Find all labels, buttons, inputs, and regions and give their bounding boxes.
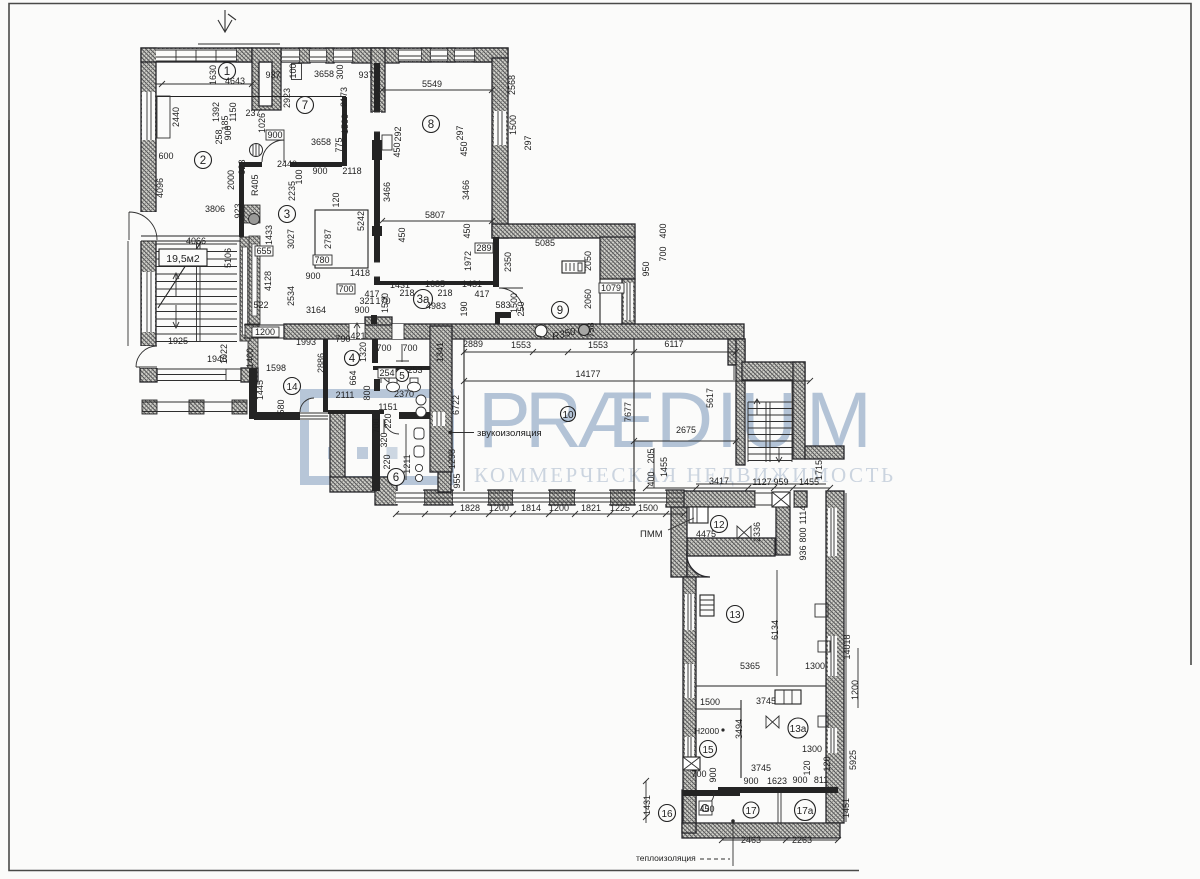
svg-text:теплоизоляция: теплоизоляция (636, 853, 696, 863)
svg-text:1972: 1972 (463, 251, 473, 271)
svg-text:1993: 1993 (296, 337, 316, 347)
svg-text:664: 664 (348, 370, 358, 385)
svg-text:900: 900 (792, 775, 807, 785)
svg-text:Н2000: Н2000 (694, 726, 719, 736)
svg-text:790: 790 (335, 334, 350, 344)
svg-text:9: 9 (557, 305, 563, 317)
svg-text:8: 8 (428, 119, 434, 131)
svg-text:17а: 17а (797, 806, 814, 817)
svg-text:1320: 1320 (358, 342, 368, 362)
svg-text:2000: 2000 (226, 170, 236, 190)
svg-text:3658: 3658 (311, 137, 331, 147)
svg-text:955: 955 (452, 473, 462, 488)
svg-text:100: 100 (288, 63, 298, 78)
svg-text:14177: 14177 (575, 369, 600, 379)
svg-text:Æ: Æ (577, 375, 656, 464)
svg-text:3417: 3417 (709, 476, 729, 486)
svg-text:120: 120 (822, 756, 832, 771)
svg-text:1150: 1150 (228, 102, 238, 121)
svg-text:1200: 1200 (489, 503, 509, 513)
svg-text:1433: 1433 (264, 225, 274, 245)
svg-text:P: P (478, 375, 531, 464)
svg-text:3806: 3806 (205, 204, 225, 214)
svg-text:4475: 4475 (696, 529, 716, 539)
svg-text:2235: 2235 (287, 181, 297, 201)
svg-text:2060: 2060 (583, 289, 593, 309)
svg-text:7677: 7677 (623, 402, 633, 422)
svg-text:421: 421 (350, 331, 365, 341)
svg-text:4: 4 (349, 353, 356, 365)
svg-text:5617: 5617 (705, 388, 715, 408)
svg-text:15: 15 (702, 745, 714, 756)
svg-text:900: 900 (267, 130, 282, 140)
svg-text:900: 900 (708, 767, 718, 782)
svg-text:14018: 14018 (842, 634, 852, 659)
svg-text:3027: 3027 (286, 229, 296, 249)
svg-text:2263: 2263 (792, 835, 812, 845)
svg-text:300: 300 (335, 64, 345, 79)
svg-text:6: 6 (393, 472, 399, 484)
svg-text:13а: 13а (790, 724, 807, 735)
svg-text:253: 253 (407, 365, 422, 375)
svg-text:5: 5 (399, 371, 405, 382)
svg-text:4096: 4096 (155, 178, 165, 198)
svg-text:297: 297 (455, 125, 465, 140)
svg-text:700: 700 (376, 343, 391, 353)
svg-text:1553: 1553 (511, 340, 531, 350)
svg-text:450: 450 (699, 804, 714, 814)
svg-text:1341: 1341 (435, 342, 445, 362)
svg-text:5242: 5242 (356, 211, 366, 231)
svg-text:700: 700 (691, 769, 706, 779)
svg-text:2050: 2050 (583, 251, 593, 271)
svg-text:700: 700 (371, 418, 381, 433)
svg-text:КОММЕРЧЕСКАЯ НЕДВИЖИМОСТЬ: КОММЕРЧЕСКАЯ НЕДВИЖИМОСТЬ (474, 463, 894, 487)
svg-text:1300: 1300 (805, 661, 825, 671)
svg-text:2463: 2463 (741, 835, 761, 845)
svg-text:205: 205 (646, 448, 656, 463)
svg-text:936: 936 (798, 545, 808, 560)
svg-text:417: 417 (474, 289, 489, 299)
svg-text:900: 900 (312, 166, 327, 176)
svg-text:700: 700 (402, 343, 417, 353)
svg-text:14: 14 (286, 382, 298, 393)
svg-text:800: 800 (798, 527, 808, 542)
svg-text:900: 900 (354, 305, 369, 315)
svg-text:289: 289 (476, 243, 491, 253)
svg-text:1500: 1500 (508, 115, 518, 135)
svg-text:780: 780 (314, 255, 329, 265)
svg-text:1431: 1431 (642, 795, 652, 815)
svg-text:900: 900 (305, 271, 320, 281)
svg-text:2111: 2111 (336, 390, 355, 400)
svg-text:5807: 5807 (425, 210, 445, 220)
svg-text:1200: 1200 (255, 327, 275, 337)
svg-text:1418: 1418 (350, 268, 370, 278)
svg-text:450: 450 (462, 223, 472, 238)
svg-text:звукоизоляция: звукоизоляция (477, 428, 542, 439)
svg-text:190: 190 (459, 301, 469, 316)
svg-text:1623: 1623 (767, 776, 787, 786)
svg-text:ПММ: ПММ (640, 529, 663, 540)
svg-text:I: I (716, 375, 738, 464)
svg-text:1455: 1455 (659, 457, 669, 477)
svg-text:775: 775 (334, 137, 344, 152)
svg-text:5365: 5365 (740, 661, 760, 671)
svg-text:1715: 1715 (814, 460, 824, 480)
svg-text:450: 450 (459, 141, 469, 156)
svg-text:3164: 3164 (306, 305, 326, 315)
svg-text:1200: 1200 (549, 503, 569, 513)
svg-text:5106: 5106 (223, 248, 233, 268)
svg-text:4983: 4983 (426, 301, 446, 311)
svg-text:2923: 2923 (282, 88, 292, 108)
svg-text:1598: 1598 (266, 363, 286, 373)
svg-text:1200: 1200 (850, 680, 860, 700)
svg-text:2440: 2440 (171, 107, 181, 127)
svg-text:1400: 1400 (245, 348, 255, 368)
svg-text:2889: 2889 (463, 339, 483, 349)
svg-text:2675: 2675 (676, 425, 696, 435)
svg-text:3494: 3494 (734, 719, 744, 739)
svg-text:1026: 1026 (257, 113, 267, 133)
svg-text:1500: 1500 (700, 697, 720, 707)
svg-text:900: 900 (223, 125, 233, 140)
svg-text:220: 220 (382, 454, 392, 469)
svg-text:254: 254 (379, 368, 394, 378)
svg-text:2440: 2440 (277, 159, 297, 169)
svg-text:1431: 1431 (462, 279, 482, 289)
svg-text:2886: 2886 (316, 353, 326, 373)
svg-text:2787: 2787 (323, 229, 333, 249)
svg-text:3745: 3745 (756, 696, 776, 706)
svg-text:923: 923 (237, 159, 247, 174)
svg-text:400: 400 (646, 471, 656, 486)
svg-text:5085: 5085 (535, 238, 555, 248)
svg-text:700: 700 (658, 246, 668, 261)
svg-text:5925: 5925 (848, 750, 858, 770)
svg-text:800: 800 (362, 385, 372, 400)
svg-text:1079: 1079 (601, 283, 621, 293)
svg-text:2336: 2336 (752, 522, 762, 542)
svg-text:580: 580 (276, 399, 286, 414)
svg-text:4066: 4066 (186, 236, 206, 246)
svg-text:937: 937 (358, 70, 373, 80)
svg-text:1553: 1553 (588, 340, 608, 350)
svg-text:2118: 2118 (342, 166, 361, 176)
svg-text:R405: R405 (250, 174, 260, 196)
svg-text:2568: 2568 (507, 75, 517, 95)
svg-text:1630: 1630 (208, 65, 218, 85)
svg-text:19,5м2: 19,5м2 (166, 253, 200, 265)
svg-text:220: 220 (383, 413, 393, 428)
svg-text:1500: 1500 (380, 293, 390, 313)
svg-text:120: 120 (331, 192, 341, 207)
svg-text:522: 522 (253, 300, 268, 310)
svg-text:400: 400 (658, 223, 668, 238)
svg-text:1225: 1225 (610, 503, 630, 513)
svg-text:1925: 1925 (168, 336, 188, 346)
svg-text:7: 7 (302, 100, 308, 112)
svg-text:450: 450 (392, 142, 402, 157)
svg-text:1451: 1451 (841, 798, 851, 818)
svg-text:811: 811 (814, 775, 828, 785)
svg-text:6134: 6134 (770, 620, 780, 640)
svg-text:218: 218 (437, 288, 452, 298)
svg-text:218: 218 (399, 288, 414, 298)
svg-text:959: 959 (773, 477, 788, 487)
svg-text:3466: 3466 (382, 182, 392, 202)
svg-text:1445: 1445 (255, 380, 265, 400)
svg-text:900: 900 (743, 776, 758, 786)
svg-text:1298: 1298 (447, 449, 457, 469)
svg-text:1828: 1828 (460, 503, 480, 513)
svg-text:13: 13 (729, 610, 741, 621)
svg-text:2: 2 (200, 155, 206, 167)
svg-text:6117: 6117 (664, 339, 683, 349)
svg-text:292: 292 (393, 126, 403, 141)
svg-text:297: 297 (523, 135, 533, 150)
svg-text:17: 17 (745, 806, 757, 817)
svg-text:600: 600 (158, 151, 173, 161)
svg-text:1814: 1814 (521, 503, 541, 513)
svg-text:4643: 4643 (225, 76, 245, 86)
svg-text:923: 923 (233, 203, 243, 218)
svg-text:10: 10 (562, 410, 574, 421)
svg-text:1300: 1300 (802, 744, 822, 754)
svg-text:937: 937 (265, 70, 280, 80)
svg-text:1151: 1151 (378, 402, 397, 412)
svg-text:700: 700 (338, 284, 353, 294)
svg-text:6722: 6722 (451, 395, 461, 415)
svg-text:1821: 1821 (581, 503, 601, 513)
svg-text:2173: 2173 (339, 87, 349, 107)
svg-text:5549: 5549 (422, 79, 442, 89)
svg-text:950: 950 (641, 261, 651, 276)
svg-text:U: U (740, 375, 797, 464)
svg-text:3745: 3745 (751, 763, 771, 773)
svg-text:320: 320 (379, 432, 389, 447)
svg-text:3658: 3658 (314, 69, 334, 79)
svg-text:16: 16 (661, 809, 673, 820)
svg-text:450: 450 (397, 227, 407, 242)
svg-text:2350: 2350 (503, 252, 513, 272)
svg-text:1500: 1500 (340, 114, 350, 134)
svg-text:1211: 1211 (402, 454, 412, 473)
svg-text:3466: 3466 (461, 180, 471, 200)
svg-text:655: 655 (256, 246, 271, 256)
svg-text:3: 3 (284, 209, 290, 221)
svg-text:1114: 1114 (798, 506, 808, 525)
svg-text:1500: 1500 (638, 503, 658, 513)
svg-text:4128: 4128 (263, 271, 273, 291)
svg-text:250: 250 (516, 301, 526, 316)
svg-text:2370: 2370 (394, 389, 414, 399)
svg-text:2534: 2534 (286, 286, 296, 306)
svg-text:1127: 1127 (752, 477, 771, 487)
svg-text:1946: 1946 (207, 354, 227, 364)
svg-text:120: 120 (802, 760, 812, 775)
